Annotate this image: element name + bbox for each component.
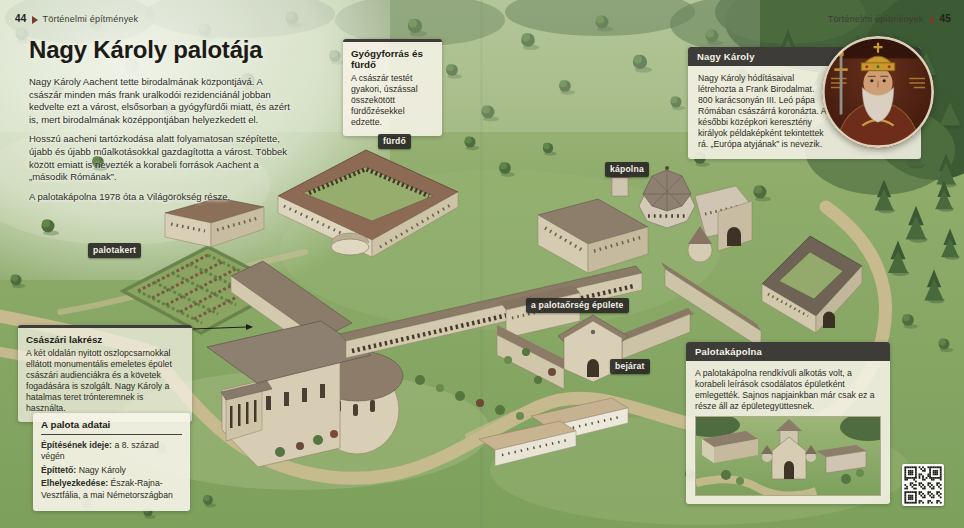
- callout-imperial-title: Császári lakrész: [26, 334, 184, 345]
- page-number-left: 44: [15, 13, 27, 24]
- callout-data-title: A palota adatai: [41, 419, 182, 430]
- data-row-label: Építésének ideje:: [41, 440, 112, 450]
- book-spread: 44Történelmi építmények Történelmi építm…: [0, 0, 964, 528]
- data-row-value: Nagy Károly: [76, 465, 126, 475]
- callout-chapel-title: Palotakápolna: [686, 342, 890, 361]
- data-row-label: Elhelyezkedése:: [41, 478, 108, 488]
- callout-bath-title: Gyógyforrás és fürdő: [351, 48, 434, 70]
- article-paragraph: Hosszú aacheni tartózkodása alatt folyam…: [29, 133, 297, 183]
- map-label-bath: fürdő: [378, 134, 411, 149]
- chapel-thumbnail-image: [695, 416, 881, 496]
- page-title: Nagy Károly palotája: [29, 36, 297, 64]
- data-row: Elhelyezkedése: Észak-Rajna-Vesztfália, …: [41, 478, 182, 501]
- qr-code: [902, 464, 944, 506]
- data-row: Építésének ideje: a 8. század végén: [41, 440, 182, 463]
- page-number-right: 45: [939, 13, 951, 24]
- map-label-garden: palotakert: [88, 243, 141, 258]
- data-row: Építtető: Nagy Károly: [41, 465, 182, 476]
- article: Nagy Károly palotája Nagy Károly Aachent…: [29, 36, 297, 210]
- section-title-left: Történelmi építmények: [43, 14, 139, 24]
- running-head-left: 44Történelmi építmények: [15, 13, 138, 24]
- map-label-guard: a palotaőrség épülete: [526, 298, 629, 313]
- callout-bath-body: A császár testét gyakori, úszással össze…: [351, 73, 434, 128]
- map-label-entrance: bejárat: [610, 359, 650, 374]
- callout-chapel: Palotakápolna A palotakápolna rendkívüli…: [686, 342, 890, 504]
- callout-imperial: Császári lakrész A két oldalán nyitott o…: [18, 325, 192, 422]
- charlemagne-portrait: [822, 36, 934, 148]
- divider: [41, 434, 182, 435]
- callout-palace-data: A palota adatai Építésének ideje: a 8. s…: [33, 413, 190, 511]
- article-paragraph: A palotakápolna 1978 óta a Világörökség …: [29, 191, 297, 204]
- callout-bath: Gyógyforrás és fürdő A császár testét gy…: [343, 39, 442, 136]
- running-head-right: Történelmi építmények45: [828, 13, 951, 24]
- arrow-left-icon: [928, 16, 934, 24]
- callout-imperial-body: A két oldalán nyitott oszlopcsarnokkal e…: [26, 348, 184, 414]
- data-row-label: Építtető:: [41, 465, 76, 475]
- arrow-right-icon: [32, 16, 38, 24]
- map-label-chapel: kápolna: [605, 162, 649, 177]
- article-paragraph: Nagy Károly Aachent tette birodalmának k…: [29, 76, 297, 126]
- section-title-right: Történelmi építmények: [828, 14, 924, 24]
- callout-chapel-body: A palotakápolna rendkívüli alkotás volt,…: [695, 368, 881, 412]
